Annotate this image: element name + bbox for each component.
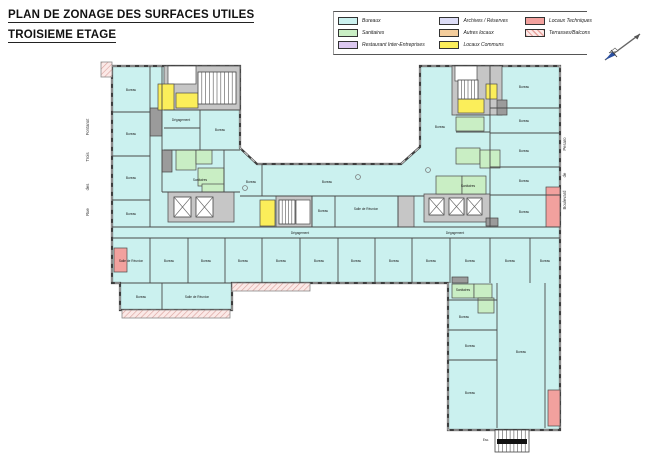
room-label: Bureau <box>238 259 249 263</box>
room-label: Bureau <box>314 259 325 263</box>
room-label: Dégagement <box>291 231 309 235</box>
room-label: Bureau <box>215 128 226 132</box>
room-label: Bureau <box>126 132 137 136</box>
shaft <box>486 218 498 226</box>
room-label: Salle de Réunion <box>119 259 144 263</box>
room-label: Bureau <box>126 176 137 180</box>
room-blanc <box>296 200 310 224</box>
room-sanitaires <box>176 150 196 170</box>
room-label: Sanitaires <box>461 184 476 188</box>
room-label: Bureau <box>519 85 530 89</box>
room-label: Bureau <box>322 180 333 184</box>
street-label-left: Fontanot <box>85 118 90 135</box>
terrace <box>101 62 112 77</box>
room-communs <box>486 84 497 99</box>
street-label-left: Rue <box>85 207 90 215</box>
room-sanitaires <box>474 284 492 298</box>
street-label-right: Pesaro <box>562 137 567 151</box>
room-label: Bureau <box>126 88 137 92</box>
room-label: Dégagement <box>172 118 190 122</box>
staircase <box>279 200 295 224</box>
room-label: Bureau <box>465 391 476 395</box>
street-label-left: Trois <box>85 152 90 161</box>
room-sanitaires <box>202 184 224 192</box>
street-label-left: des <box>85 184 90 191</box>
room-label: Dégagement <box>446 231 464 235</box>
room-communs <box>176 93 198 108</box>
floor-plan-root: BureauBureauBureauBureauBureauDégagement… <box>85 62 567 452</box>
room-techniques <box>546 187 560 227</box>
room-label: Bureau <box>465 259 476 263</box>
room-sanitaires <box>456 148 480 164</box>
terrace <box>122 310 230 318</box>
plan-sheet: PLAN DE ZONAGE DES SURFACES UTILES TROIS… <box>0 0 655 465</box>
room-label: Esc. <box>483 438 489 442</box>
room-label: Bureau <box>519 119 530 123</box>
room-label: Bureau <box>465 344 476 348</box>
room-label: Bureau <box>519 149 530 153</box>
room-label: Bureau <box>426 259 437 263</box>
street-label-right: Boulevard <box>562 190 567 210</box>
room-communs <box>458 99 484 113</box>
room-label: Bureau <box>435 125 446 129</box>
room-label: Bureau <box>519 210 530 214</box>
room-label: Bureau <box>246 180 257 184</box>
room-label: Bureau <box>459 315 470 319</box>
room-communs <box>260 200 275 226</box>
room-label: Bureau <box>126 212 137 216</box>
room-sanitaires <box>198 168 224 186</box>
room-blanc <box>455 66 477 81</box>
core-block <box>398 196 414 227</box>
room-label: Bureau <box>318 209 329 213</box>
room-label: Salle de Réunion <box>185 295 210 299</box>
room-label: Bureau <box>516 350 527 354</box>
exterior-stair-landing <box>497 439 527 444</box>
room-label: Bureau <box>389 259 400 263</box>
room-sanitaires <box>456 117 484 131</box>
room-communs <box>158 84 174 110</box>
room-label: Sanitaires <box>193 178 208 182</box>
room-label: Bureau <box>276 259 287 263</box>
room-sanitaires <box>196 150 212 164</box>
room-label: Bureau <box>164 259 175 263</box>
room-label: Bureau <box>505 259 516 263</box>
floor-plan: BureauBureauBureauBureauBureauDégagement… <box>0 0 655 465</box>
room-blanc <box>168 66 196 84</box>
room-label: Bureau <box>540 259 551 263</box>
shaft <box>497 100 507 115</box>
room-label: Bureau <box>201 259 212 263</box>
shaft <box>150 108 162 136</box>
room-techniques <box>548 390 560 426</box>
room-label: Sanitaires <box>456 288 471 292</box>
room-label: Salle de Réunion <box>354 207 379 211</box>
shaft <box>452 277 468 283</box>
room-label: Bureau <box>519 179 530 183</box>
street-label-right: de <box>562 172 567 177</box>
room-label: Bureau <box>136 295 147 299</box>
room-label: Bureau <box>351 259 362 263</box>
shaft <box>162 150 172 172</box>
room-sanitaires <box>436 176 462 194</box>
terrace <box>232 283 310 291</box>
